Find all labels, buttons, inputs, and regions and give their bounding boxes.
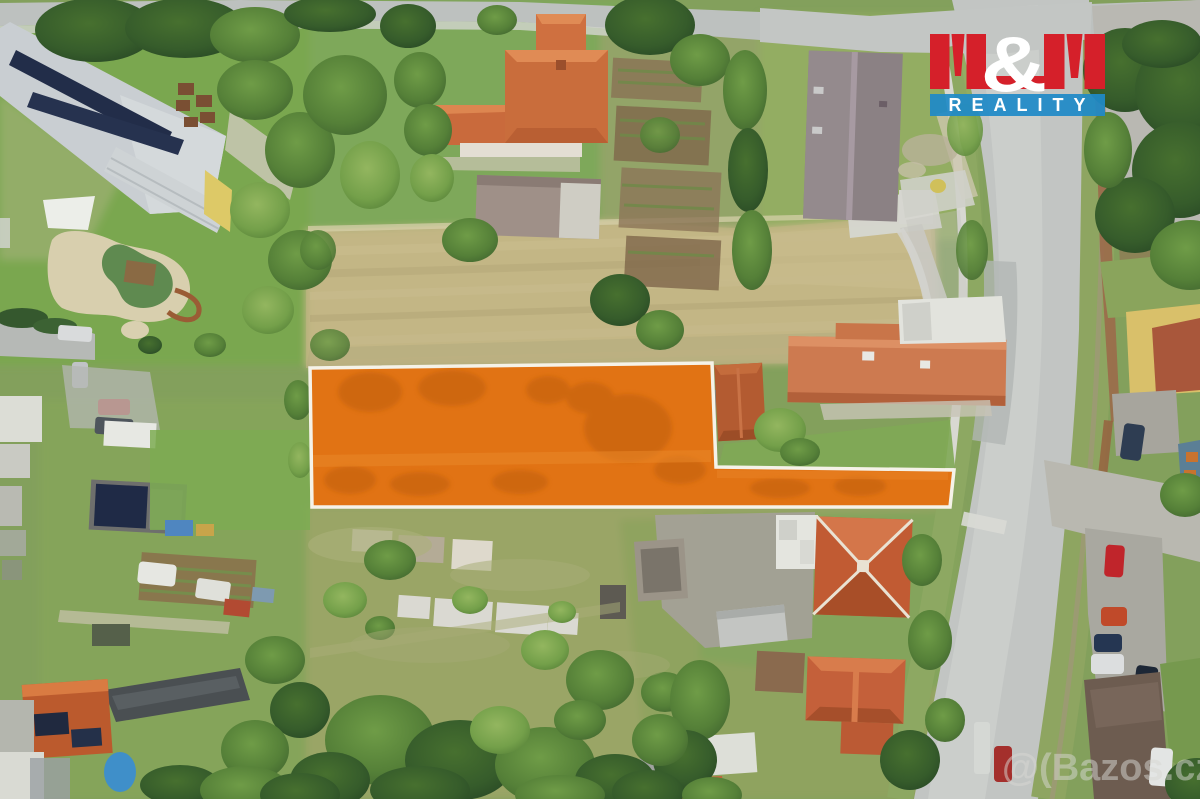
svg-text:@(Bazos.cz: @(Bazos.cz — [1002, 747, 1200, 789]
svg-text:REALITY: REALITY — [948, 95, 1095, 115]
